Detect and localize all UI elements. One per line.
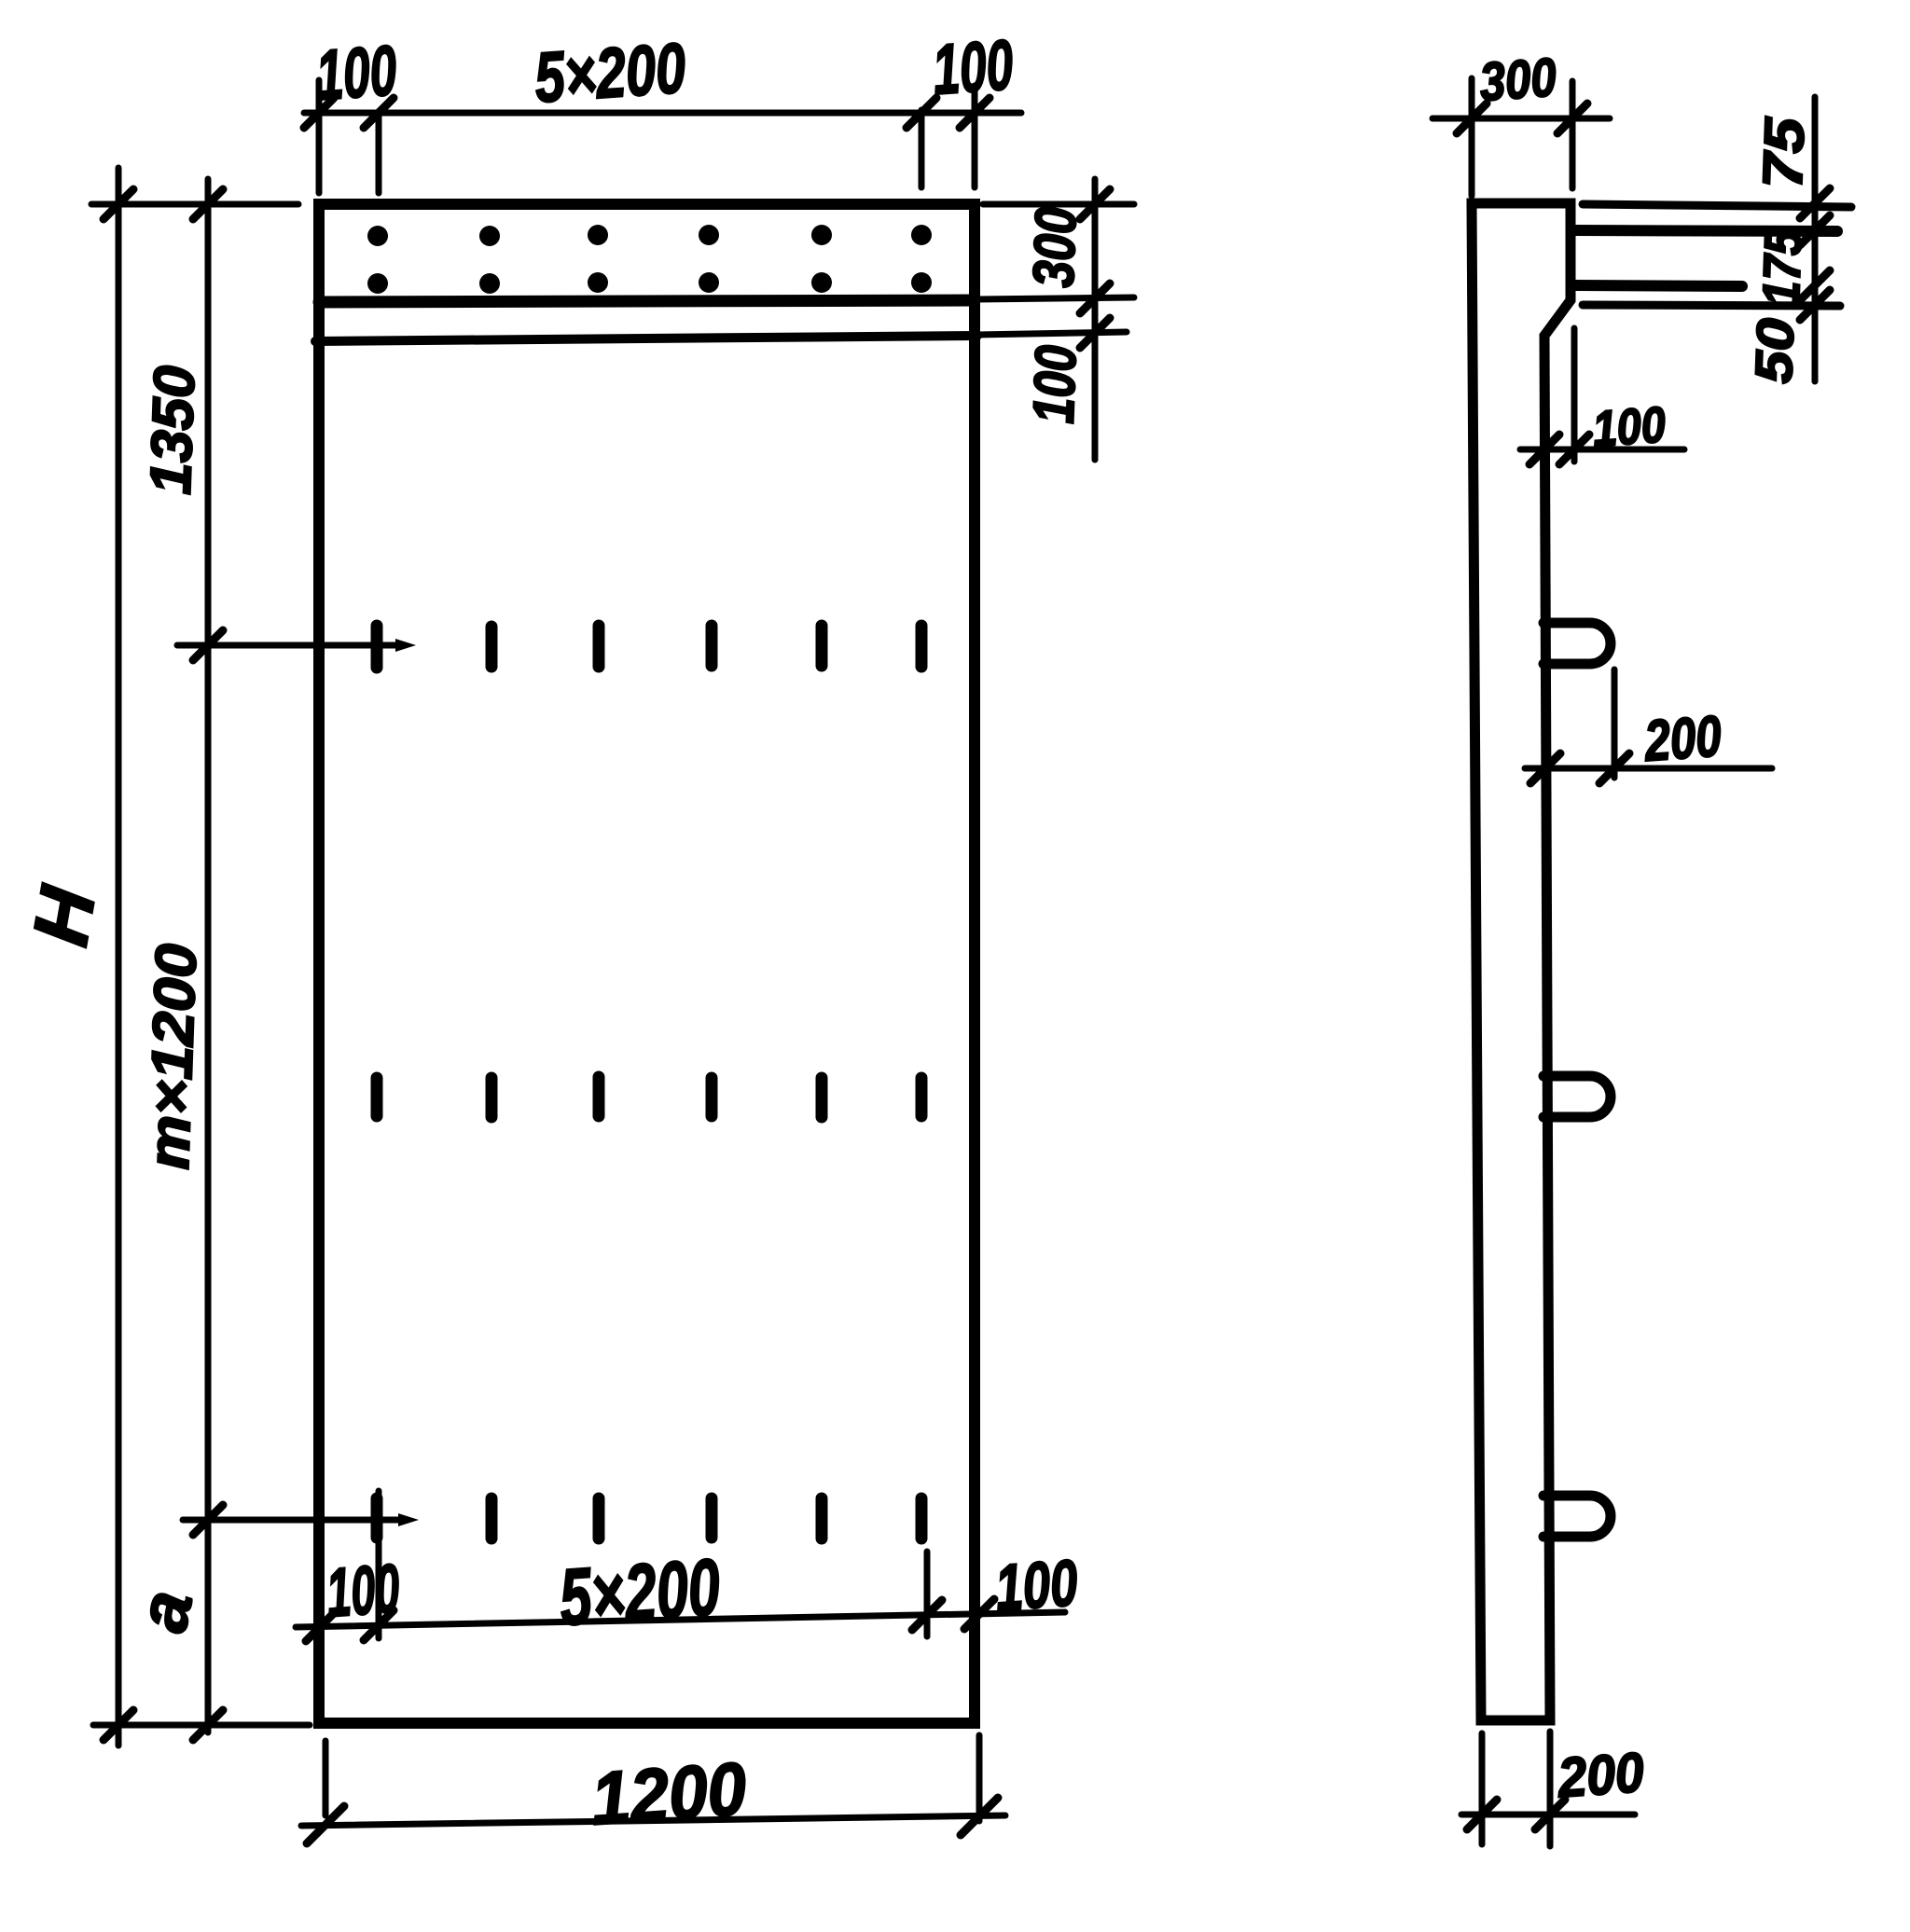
- svg-text:200: 200: [1555, 1741, 1645, 1809]
- svg-text:a: a: [122, 1583, 208, 1638]
- svg-text:100: 100: [993, 1546, 1080, 1624]
- svg-text:300: 300: [1022, 206, 1089, 288]
- svg-text:5×200: 5×200: [532, 29, 688, 118]
- svg-text:1200: 1200: [588, 1746, 749, 1840]
- svg-text:m×1200: m×1200: [137, 943, 209, 1170]
- svg-text:100: 100: [313, 31, 399, 116]
- svg-text:200: 200: [1641, 704, 1723, 774]
- svg-text:5×200: 5×200: [557, 1542, 723, 1643]
- svg-text:100: 100: [324, 1549, 402, 1631]
- svg-text:50: 50: [1744, 317, 1805, 384]
- svg-text:100: 100: [1022, 344, 1089, 424]
- svg-text:300: 300: [1477, 47, 1557, 113]
- svg-text:175: 175: [1751, 228, 1813, 307]
- svg-text:1350: 1350: [139, 365, 208, 495]
- svg-text:100: 100: [930, 25, 1016, 110]
- svg-text:75: 75: [1751, 115, 1817, 189]
- svg-text:H: H: [16, 879, 113, 952]
- svg-text:100: 100: [1591, 396, 1668, 457]
